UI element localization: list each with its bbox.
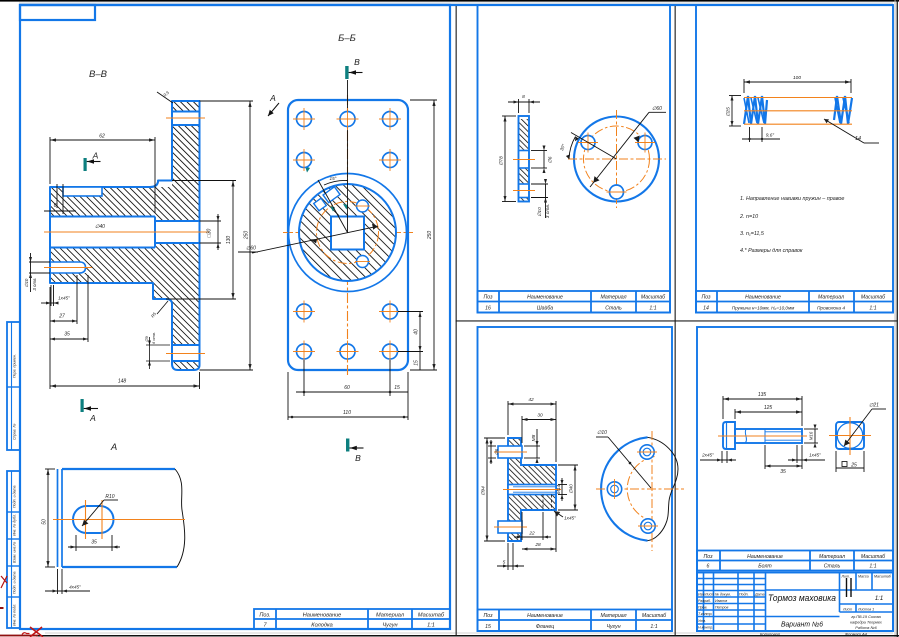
- svg-text:Поз.: Поз.: [259, 612, 270, 618]
- svg-text:Проволока 4: Проволока 4: [817, 305, 845, 311]
- svg-text:□30: □30: [207, 228, 213, 237]
- svg-text:Разраб.: Разраб.: [698, 599, 711, 603]
- svg-text:R10: R10: [105, 494, 114, 500]
- svg-text:Инв. № подл.: Инв. № подл.: [13, 604, 17, 626]
- svg-text:2. n=10: 2. n=10: [739, 214, 758, 220]
- svg-text:∅21: ∅21: [869, 403, 879, 409]
- svg-text:Дата: Дата: [754, 593, 764, 597]
- svg-text:30: 30: [537, 413, 543, 419]
- svg-text:25: 25: [850, 463, 857, 469]
- svg-text:Работа №6: Работа №6: [855, 626, 877, 630]
- svg-text:Пружина н=10мм, Н₀=10,0мм: Пружина н=10мм, Н₀=10,0мм: [732, 305, 795, 310]
- svg-text:Масштаб: Масштаб: [861, 554, 886, 560]
- svg-text:∅10: ∅10: [537, 207, 543, 217]
- svg-text:Материал: Материал: [601, 613, 627, 619]
- svg-text:4х45°: 4х45°: [69, 585, 81, 590]
- svg-text:А: А: [110, 442, 117, 453]
- svg-text:35: 35: [780, 469, 786, 475]
- svg-text:А: А: [269, 93, 276, 103]
- svg-text:148: 148: [118, 379, 127, 385]
- svg-text:кафедра Теормех: кафедра Теормех: [850, 621, 883, 625]
- svg-text:Масштаб: Масштаб: [874, 575, 892, 579]
- svg-text:В: В: [354, 57, 360, 67]
- svg-text:1х45°: 1х45°: [58, 296, 70, 301]
- svg-text:135: 135: [758, 392, 767, 398]
- svg-text:62: 62: [99, 134, 105, 140]
- svg-text:15: 15: [414, 360, 420, 366]
- svg-text:22: 22: [528, 531, 535, 537]
- svg-text:Наименование: Наименование: [747, 554, 783, 560]
- svg-text:1х45°: 1х45°: [564, 516, 576, 521]
- svg-text:В: В: [355, 453, 361, 463]
- svg-text:Сталь: Сталь: [605, 305, 622, 311]
- svg-text:Наименование: Наименование: [303, 612, 342, 618]
- svg-text:5: 5: [503, 560, 506, 566]
- svg-text:3. n₁=11,5: 3. n₁=11,5: [740, 231, 765, 237]
- svg-text:М8: М8: [531, 434, 537, 441]
- svg-text:1:1: 1:1: [869, 564, 876, 570]
- svg-text:М14: М14: [556, 485, 562, 495]
- svg-text:Материал: Материал: [376, 612, 405, 618]
- svg-text:6: 6: [707, 564, 710, 570]
- svg-text:Болт: Болт: [758, 564, 772, 570]
- svg-text:27: 27: [58, 314, 65, 320]
- svg-text:Тормоз маховика: Тормоз маховика: [768, 593, 836, 603]
- svg-text:15°: 15°: [330, 176, 337, 181]
- svg-text:Наименование: Наименование: [527, 295, 563, 301]
- svg-text:А: А: [92, 150, 99, 160]
- svg-text:Пров.: Пров.: [698, 605, 707, 609]
- svg-text:Чугун: Чугун: [606, 624, 620, 630]
- svg-text:гр.ПВ-19 Сизова: гр.ПВ-19 Сизова: [851, 615, 881, 619]
- svg-text:Листов 1: Листов 1: [857, 608, 874, 612]
- svg-text:Н.контр.: Н.контр.: [698, 625, 713, 629]
- svg-text:Иванов: Иванов: [715, 599, 727, 603]
- svg-text:250: 250: [427, 231, 433, 241]
- svg-text:Поз: Поз: [484, 295, 494, 301]
- svg-text:15: 15: [485, 624, 491, 630]
- svg-text:28: 28: [534, 542, 541, 548]
- svg-text:Наименование: Наименование: [745, 295, 781, 301]
- svg-text:Масштаб: Масштаб: [861, 295, 886, 301]
- svg-text:Масштаб: Масштаб: [418, 612, 445, 618]
- svg-text:Подп.: Подп.: [739, 593, 749, 597]
- svg-text:1х45°: 1х45°: [809, 453, 821, 458]
- svg-text:60: 60: [344, 385, 350, 391]
- svg-text:3 отв.: 3 отв.: [545, 204, 551, 219]
- svg-text:Копировал: Копировал: [760, 632, 781, 637]
- svg-text:Шайба: Шайба: [537, 304, 553, 311]
- svg-text:∅6: ∅6: [494, 448, 499, 455]
- svg-text:35: 35: [64, 332, 70, 338]
- svg-text:∅25: ∅25: [726, 107, 732, 117]
- svg-text:Вариант №6: Вариант №6: [781, 622, 823, 629]
- svg-text:А: А: [89, 413, 96, 423]
- svg-text:∅10: ∅10: [597, 430, 607, 436]
- svg-text:∅60: ∅60: [652, 106, 662, 112]
- svg-text:Колодка: Колодка: [311, 623, 332, 629]
- svg-text:В–В: В–В: [89, 69, 108, 80]
- svg-text:Т.контр.: Т.контр.: [698, 612, 713, 616]
- svg-text:130: 130: [226, 236, 232, 245]
- svg-text:Наименование: Наименование: [527, 613, 563, 619]
- svg-text:1:1: 1:1: [875, 596, 883, 602]
- svg-text:∅9: ∅9: [144, 336, 149, 342]
- svg-text:Подп. и дата: Подп. и дата: [13, 572, 17, 595]
- svg-text:Поз: Поз: [484, 613, 494, 619]
- svg-text:Лист: Лист: [842, 608, 852, 612]
- svg-text:125: 125: [764, 405, 773, 411]
- svg-text:250: 250: [244, 231, 250, 241]
- svg-text:100: 100: [793, 75, 801, 81]
- svg-text:Инв. № дубл.: Инв. № дубл.: [13, 514, 17, 536]
- svg-text:4.* Размеры для справок: 4.* Размеры для справок: [740, 248, 803, 254]
- svg-text:Масштаб: Масштаб: [641, 295, 666, 301]
- svg-text:Лист: Лист: [704, 593, 714, 597]
- svg-text:6 отв.: 6 отв.: [151, 332, 156, 344]
- svg-text:∅60: ∅60: [246, 246, 256, 252]
- svg-text:14: 14: [855, 136, 861, 142]
- svg-text:Фланец: Фланец: [536, 624, 555, 630]
- svg-text:∅40: ∅40: [95, 224, 105, 230]
- svg-text:6: 6: [54, 203, 57, 209]
- svg-text:2х45°: 2х45°: [701, 453, 714, 458]
- svg-text:∅94: ∅94: [481, 486, 487, 496]
- svg-text:Чугун: Чугун: [382, 623, 397, 629]
- svg-text:Лит.: Лит.: [841, 575, 850, 579]
- svg-text:Поз: Поз: [704, 554, 714, 560]
- svg-text:1:1: 1:1: [869, 305, 876, 311]
- svg-text:Материал: Материал: [819, 554, 845, 560]
- svg-text:8: 8: [522, 94, 525, 100]
- svg-text:Взам. инв.№: Взам. инв.№: [13, 542, 17, 563]
- svg-text:Б–Б: Б–Б: [338, 33, 356, 44]
- svg-text:Перв. примен.: Перв. примен.: [13, 354, 17, 378]
- svg-text:40: 40: [414, 329, 420, 335]
- svg-text:Поз: Поз: [702, 295, 712, 301]
- svg-text:№ докум.: № докум.: [715, 593, 731, 597]
- svg-text:Подп. и дата: Подп. и дата: [13, 486, 17, 509]
- svg-text:∅10: ∅10: [24, 278, 29, 287]
- svg-text:∅40: ∅40: [569, 484, 575, 494]
- svg-text:Материал: Материал: [818, 295, 844, 301]
- svg-text:Петров: Петров: [715, 605, 729, 609]
- svg-text:1:1: 1:1: [650, 624, 657, 630]
- svg-text:Справ. №: Справ. №: [13, 424, 17, 440]
- svg-text:∅78: ∅78: [499, 156, 505, 166]
- svg-text:1:1: 1:1: [427, 623, 435, 629]
- svg-text:Масса: Масса: [858, 575, 869, 579]
- svg-text:50: 50: [42, 519, 48, 525]
- svg-text:15: 15: [394, 385, 400, 391]
- svg-text:42: 42: [528, 397, 534, 403]
- svg-text:∅6: ∅6: [548, 156, 554, 163]
- svg-text:М16: М16: [809, 431, 814, 440]
- svg-text:Формат А4: Формат А4: [845, 632, 868, 637]
- svg-text:3 отв.: 3 отв.: [32, 277, 37, 290]
- svg-text:1. Направление навивки пружин: 1. Направление навивки пружин – правое: [740, 196, 844, 202]
- svg-text:Материал: Материал: [601, 295, 627, 301]
- svg-text:Масштаб: Масштаб: [642, 613, 667, 619]
- svg-text:35: 35: [91, 540, 97, 546]
- svg-text:1:1: 1:1: [649, 305, 656, 311]
- svg-text:Сталь: Сталь: [824, 564, 841, 570]
- svg-text:16: 16: [485, 305, 491, 311]
- svg-text:9,6°: 9,6°: [766, 133, 775, 139]
- svg-text:110: 110: [343, 410, 351, 416]
- svg-text:Утв.: Утв.: [698, 619, 706, 623]
- svg-text:14: 14: [703, 305, 709, 311]
